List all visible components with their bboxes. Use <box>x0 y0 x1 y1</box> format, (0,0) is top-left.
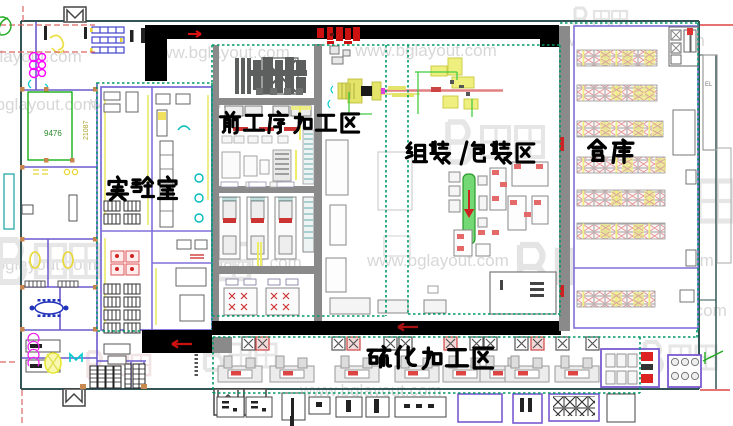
svg-text:www.bglayout.com: www.bglayout.com <box>354 41 497 60</box>
svg-text:www.bglayout.com: www.bglayout.com <box>0 47 82 66</box>
svg-text:9476: 9476 <box>44 129 62 138</box>
svg-text:www.bglayout.com: www.bglayout.com <box>0 95 97 114</box>
svg-text:21087: 21087 <box>83 120 90 140</box>
svg-text:EL: EL <box>705 82 713 88</box>
